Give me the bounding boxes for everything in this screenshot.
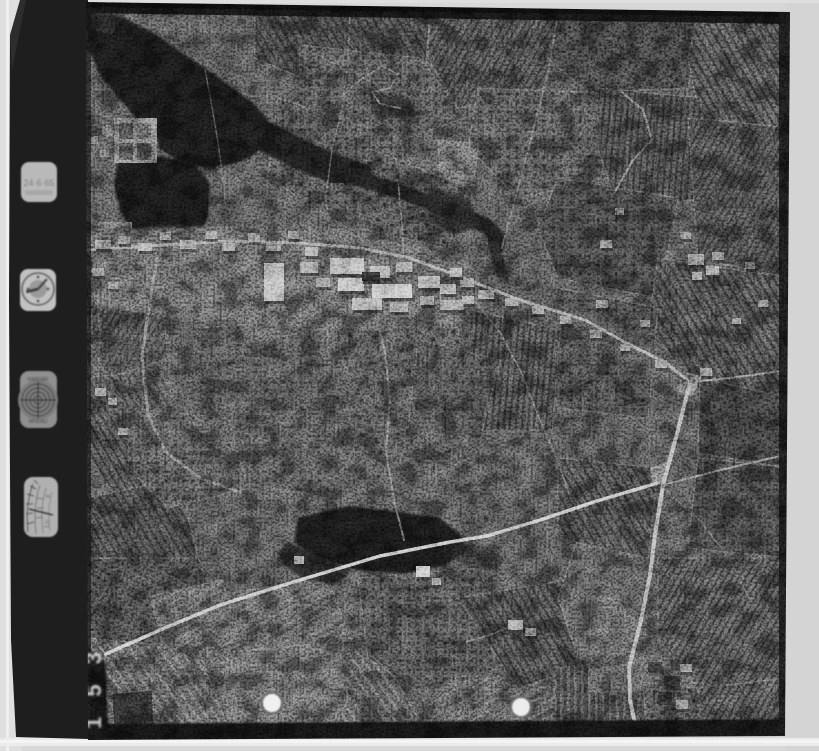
svg-text:KARDAN: KARDAN xyxy=(28,377,49,383)
svg-text:NIVEAU: NIVEAU xyxy=(29,419,48,425)
svg-text:10: 10 xyxy=(44,520,50,526)
svg-text:24·6·65: 24·6·65 xyxy=(23,178,54,188)
svg-text:m: m xyxy=(46,494,51,500)
